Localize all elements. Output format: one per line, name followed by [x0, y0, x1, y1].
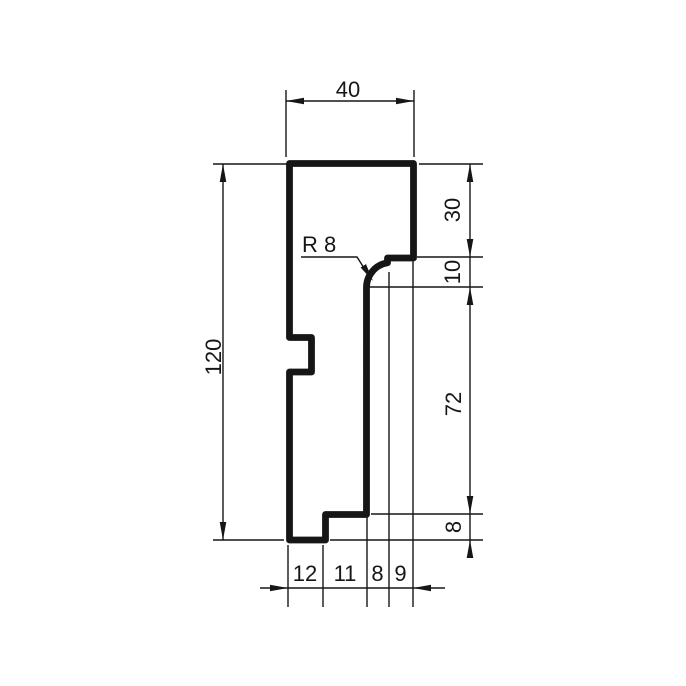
dim-label-bottom-12: 12: [293, 561, 317, 586]
dim-label-right-8: 8: [441, 521, 466, 533]
arrowhead-icon: [286, 98, 304, 105]
dim-label-bottom-9: 9: [394, 561, 406, 586]
arrowhead-icon: [220, 522, 227, 540]
dim-label-radius: R 8: [302, 232, 336, 257]
technical-profile-drawing: 40 120 30 10 72 8 12 11 8 9 R 8: [0, 0, 686, 686]
arrowhead-icon: [467, 239, 474, 257]
dim-label-bottom-11: 11: [334, 561, 357, 586]
dim-label-overall-height: 120: [201, 339, 226, 376]
arrowhead-icon: [467, 496, 474, 514]
arrowhead-icon: [467, 287, 474, 305]
arrowhead-icon: [467, 164, 474, 182]
arrowhead-icon: [396, 98, 414, 105]
radius-leader-line: [301, 257, 371, 279]
dim-label-top-width: 40: [336, 77, 360, 102]
arrowhead-icon: [467, 540, 474, 558]
dim-label-right-72: 72: [441, 392, 466, 416]
dim-label-bottom-8: 8: [371, 561, 383, 586]
dim-label-right-10: 10: [440, 260, 465, 284]
dimension-labels: 40 120 30 10 72 8 12 11 8 9 R 8: [201, 77, 466, 586]
drawing-canvas: 40 120 30 10 72 8 12 11 8 9 R 8: [0, 0, 686, 686]
arrowhead-icon: [270, 585, 288, 592]
arrowhead-icon: [220, 164, 227, 182]
arrowhead-icon: [413, 585, 431, 592]
profile-outline: [290, 164, 414, 541]
dim-label-right-30: 30: [440, 198, 465, 222]
